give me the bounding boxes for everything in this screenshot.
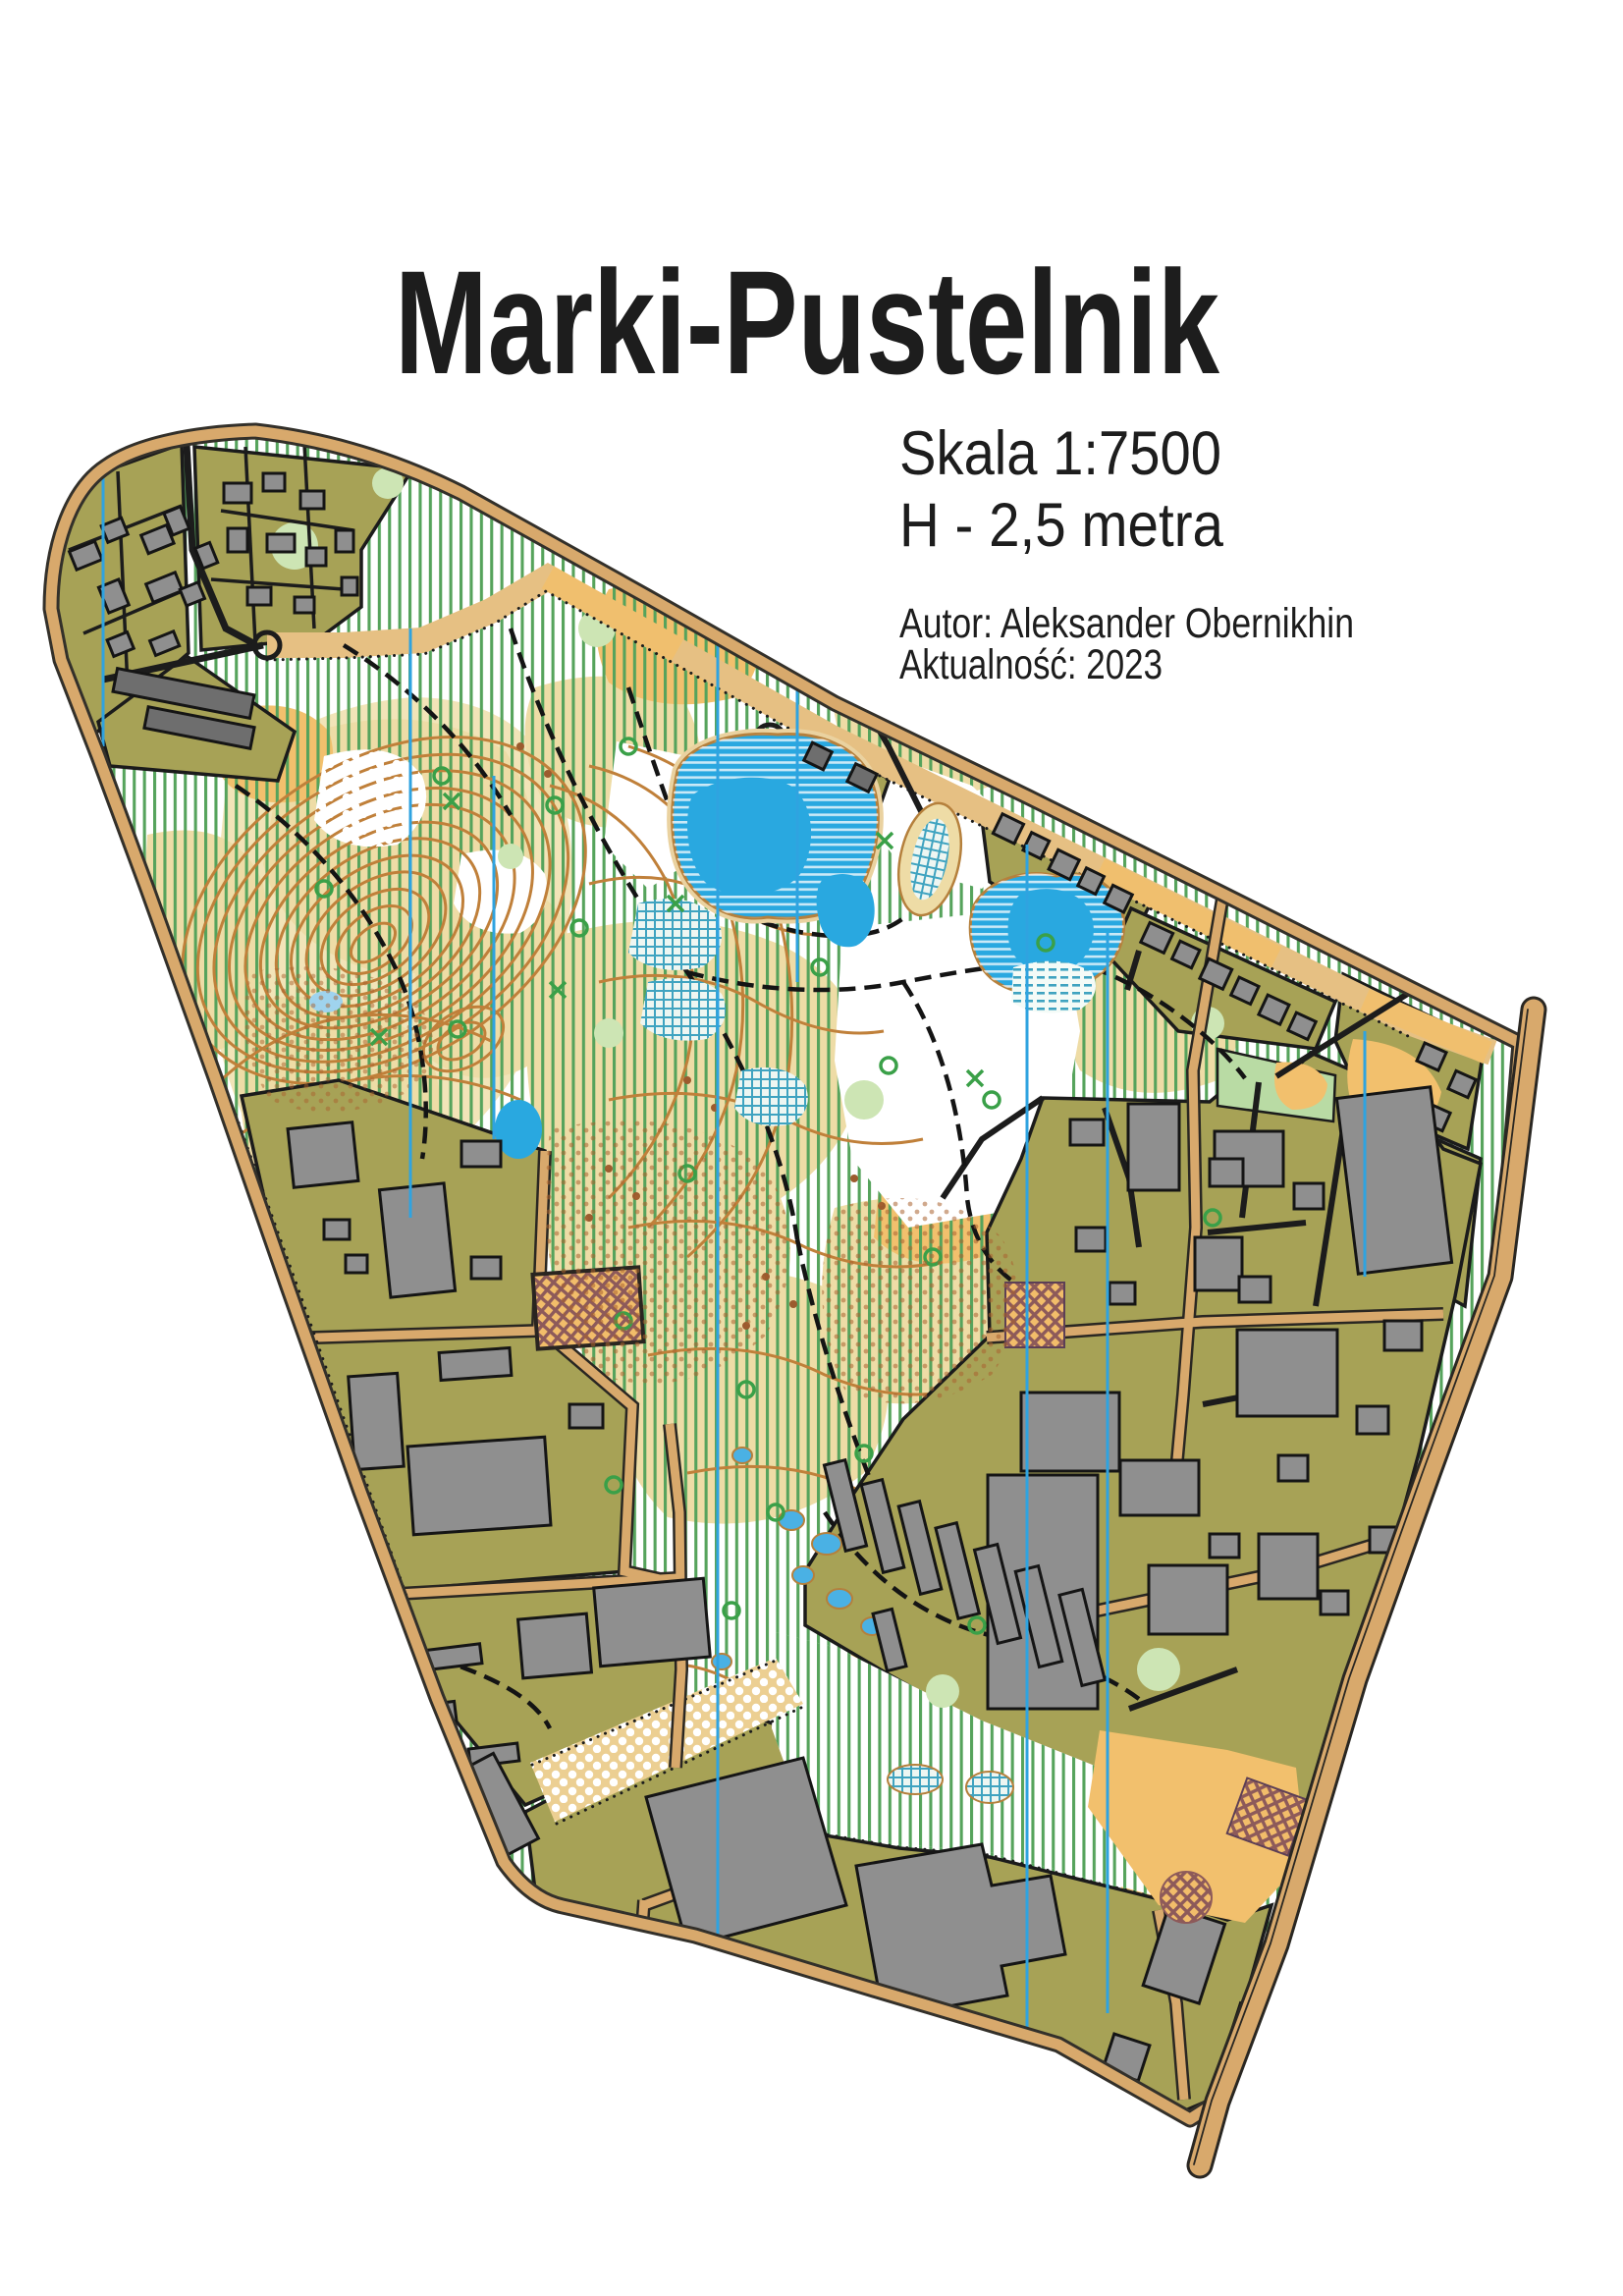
svg-text:Skala 1:7500: Skala 1:7500 [899, 419, 1221, 488]
svg-text:Marki-Pustelnik: Marki-Pustelnik [395, 240, 1219, 405]
svg-text:Aktualność: 2023: Aktualność: 2023 [899, 641, 1163, 688]
svg-text:Autor: Aleksander Obernikhin: Autor: Aleksander Obernikhin [899, 600, 1354, 647]
svg-text:H - 2,5 metra: H - 2,5 metra [899, 491, 1224, 560]
